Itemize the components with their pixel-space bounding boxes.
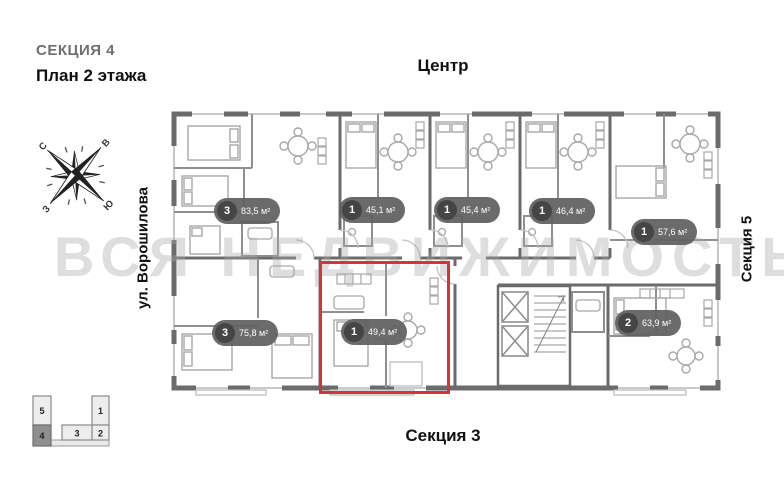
- room-count: 1: [532, 201, 552, 221]
- floor-title: План 2 этажа: [36, 66, 146, 86]
- svg-text:2: 2: [98, 429, 103, 439]
- apartment-badge[interactable]: 1 46,4 м²: [529, 198, 595, 224]
- room-count: 3: [215, 323, 235, 343]
- section-title: СЕКЦИЯ 4: [36, 42, 115, 59]
- apartment-area: 83,5 м²: [241, 206, 270, 216]
- apartment-badge[interactable]: 1 45,4 м²: [434, 197, 500, 223]
- svg-text:4: 4: [39, 431, 44, 441]
- apartment-area: 49,4 м²: [368, 327, 397, 337]
- apartment-badge[interactable]: 1 45,1 м²: [339, 197, 405, 223]
- apartment-area: 63,9 м²: [642, 318, 671, 328]
- minimap-base: [51, 440, 109, 446]
- compass-west-label: З: [41, 204, 53, 216]
- room-count: 1: [634, 222, 654, 242]
- minimap-section-1[interactable]: 1: [92, 396, 109, 425]
- apartment-badge[interactable]: 3 83,5 м²: [214, 198, 280, 224]
- room-count: 1: [344, 322, 364, 342]
- minimap-section-4-active[interactable]: 4: [33, 425, 51, 446]
- compass-south-label: Ю: [102, 198, 117, 213]
- apartment-badge[interactable]: 3 75,8 м²: [212, 320, 278, 346]
- svg-text:1: 1: [98, 406, 103, 416]
- room-count: 1: [437, 200, 457, 220]
- stairs-icon: [534, 296, 566, 352]
- apartment-area: 45,4 м²: [461, 205, 490, 215]
- room-count: 1: [342, 200, 362, 220]
- apartment-badge[interactable]: 2 63,9 м²: [615, 310, 681, 336]
- apartment-badge[interactable]: 1 57,6 м²: [631, 219, 697, 245]
- minimap-section-5[interactable]: 5: [33, 396, 51, 425]
- svg-text:5: 5: [39, 406, 44, 416]
- apartment-area: 45,1 м²: [366, 205, 395, 215]
- compass-east-label: В: [100, 137, 113, 150]
- apartment-area: 46,4 м²: [556, 206, 585, 216]
- room-count: 2: [618, 313, 638, 333]
- direction-label-center: Центр: [383, 56, 503, 76]
- floor-plan-page: СЕКЦИЯ 4 План 2 этажа Центр Секция 3 ул.…: [0, 0, 784, 500]
- elevator-icon: [502, 292, 528, 356]
- direction-label-section5: Секция 5: [739, 216, 756, 282]
- apartment-area: 75,8 м²: [239, 328, 268, 338]
- minimap-section-3[interactable]: 3: [62, 425, 92, 440]
- compass-rose-icon: С В Ю З: [28, 128, 123, 223]
- svg-text:3: 3: [74, 429, 79, 439]
- room-count: 3: [217, 201, 237, 221]
- apartment-area: 57,6 м²: [658, 227, 687, 237]
- direction-label-section3: Секция 3: [383, 426, 503, 446]
- section-minimap: 5 4 1 2 3: [24, 388, 124, 452]
- minimap-section-2[interactable]: 2: [92, 425, 109, 440]
- street-label-voroshilova: ул. Ворошилова: [135, 187, 152, 309]
- apartment-badge-selected[interactable]: 1 49,4 м²: [341, 319, 407, 345]
